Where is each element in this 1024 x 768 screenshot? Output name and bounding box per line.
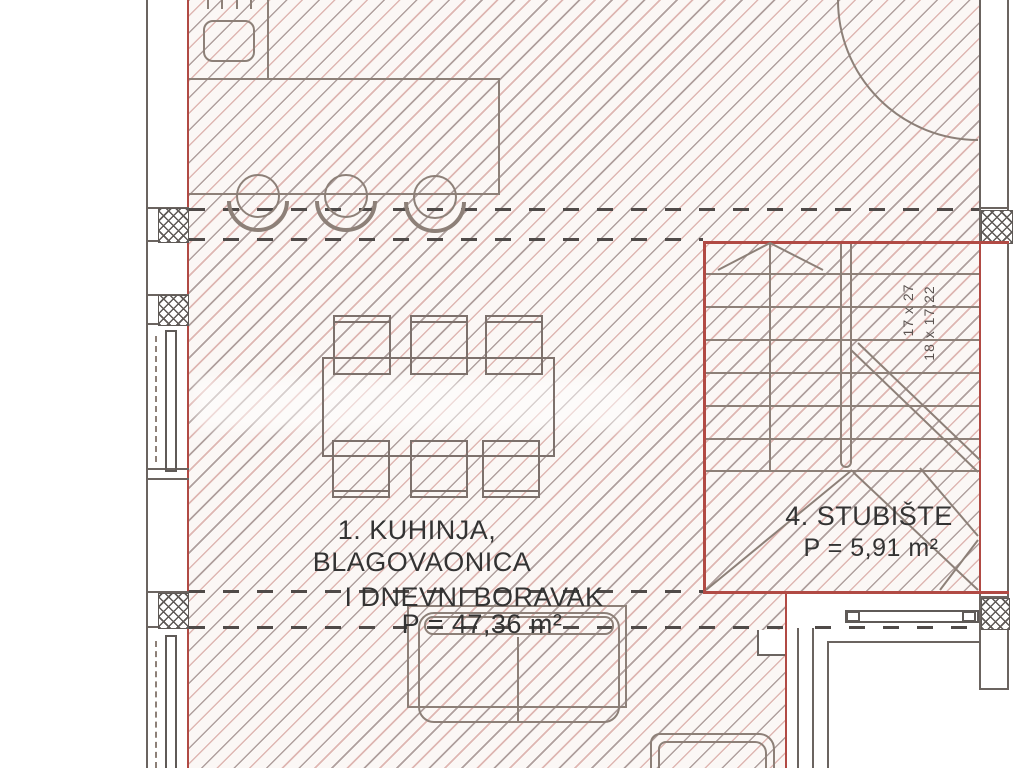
- room-label-line2: BLAGOVAONICA: [313, 549, 532, 576]
- door-swing-arc: [838, 0, 978, 140]
- stair-direction-arrow: [718, 243, 823, 270]
- plan-linework-overlay: [0, 0, 1024, 768]
- stair-dimension-note-treads: 17 x 27: [900, 284, 916, 337]
- stool-backrest-arc: [229, 201, 287, 230]
- room-area-label: P = 47,36 m²: [402, 611, 563, 638]
- stair-break-line: [858, 343, 980, 460]
- stool-backrest-arc: [317, 201, 375, 230]
- floor-plan: 1. KUHINJA, BLAGOVAONICA I DNEVNI BORAVA…: [0, 0, 1024, 768]
- stair-area-label: P = 5,91 m²: [804, 536, 939, 561]
- stair-dimension-note-risers: 18 x 17,22: [921, 285, 937, 360]
- stool-backrest-arc: [406, 202, 464, 231]
- stair-break-line: [851, 350, 978, 472]
- stair-label: 4. STUBIŠTE: [785, 503, 953, 530]
- stair-walk-diagonal: [940, 540, 978, 590]
- room-label-line3: I DNEVNI BORAVAK: [344, 584, 603, 611]
- stair-walk-diagonal: [853, 472, 978, 590]
- room-label-line1: 1. KUHINJA,: [338, 517, 497, 544]
